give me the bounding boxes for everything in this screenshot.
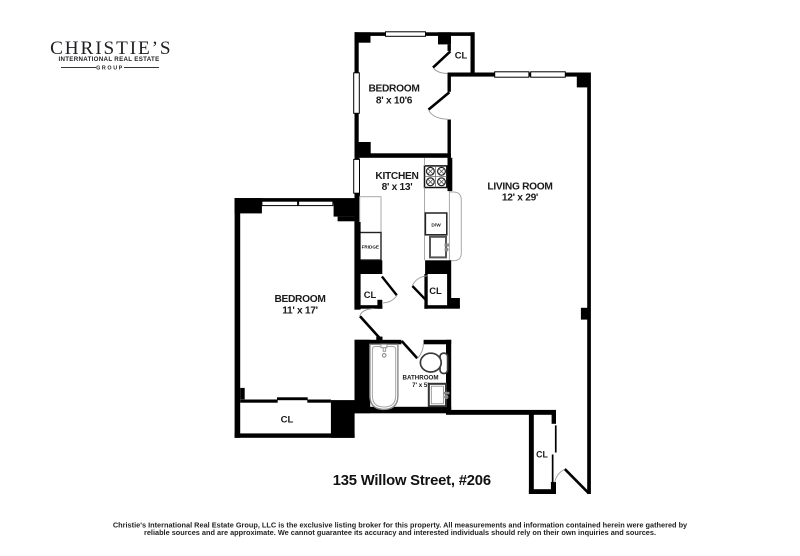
svg-text:FRIDGE: FRIDGE (362, 245, 379, 250)
svg-text:7' x 5': 7' x 5' (412, 382, 429, 389)
svg-text:8' x 13': 8' x 13' (382, 182, 413, 193)
svg-text:KITCHEN: KITCHEN (375, 171, 418, 182)
svg-text:CL: CL (364, 289, 377, 300)
svg-text:CL: CL (536, 450, 548, 460)
svg-text:BATHROOM: BATHROOM (403, 374, 439, 381)
svg-text:11' x 17': 11' x 17' (282, 306, 318, 317)
svg-text:reliable sources and are appro: reliable sources and are approximate. We… (144, 528, 656, 537)
svg-text:CL: CL (455, 50, 468, 61)
svg-text:BEDROOM: BEDROOM (274, 294, 325, 305)
svg-text:CL: CL (281, 415, 294, 426)
svg-text:INTERNATIONAL REAL ESTATE: INTERNATIONAL REAL ESTATE (58, 56, 159, 63)
svg-text:135 Willow Street, #206: 135 Willow Street, #206 (333, 473, 491, 489)
svg-text:12' x 29': 12' x 29' (502, 192, 538, 203)
svg-text:BEDROOM: BEDROOM (368, 84, 419, 95)
svg-text:GROUP: GROUP (96, 65, 124, 71)
svg-text:8' x 10'6: 8' x 10'6 (376, 95, 413, 106)
svg-text:CL: CL (429, 285, 442, 296)
svg-text:LIVING ROOM: LIVING ROOM (487, 181, 552, 192)
svg-text:D/W: D/W (431, 223, 441, 229)
